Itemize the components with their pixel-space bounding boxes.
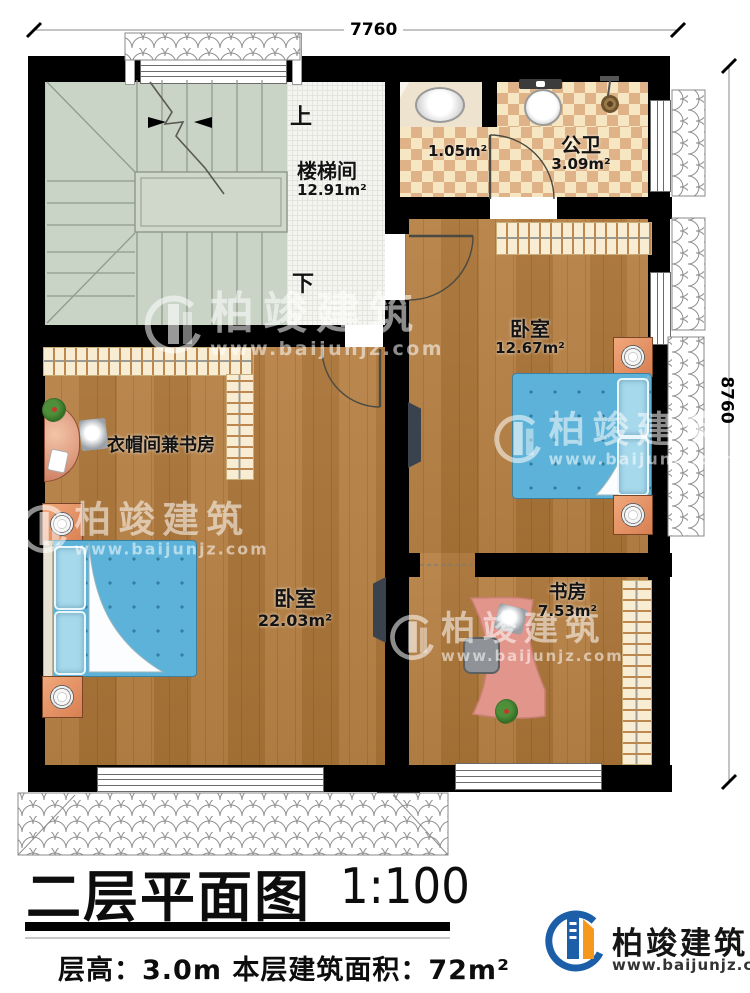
stair-down-label: 下 <box>292 273 314 298</box>
bedroom-right-closet <box>496 222 652 255</box>
bathroom-area: 3.09m² <box>546 156 616 173</box>
toilet-bowl <box>524 89 562 126</box>
cloakroom-label: 衣帽间兼书房 <box>107 436 215 456</box>
stairwell-bottom-wall <box>28 325 345 347</box>
stairwell-area: 12.91m² <box>297 182 367 199</box>
cloakroom-plant <box>42 398 66 422</box>
bedroom-right-area: 12.67m² <box>490 340 570 357</box>
dormer-roof <box>125 33 300 60</box>
study-wall-left-stub <box>409 553 420 577</box>
dormer-rail-left <box>125 33 135 85</box>
study-plant <box>495 699 518 724</box>
stairwell-name: 楼梯间 <box>297 160 367 182</box>
toilet-flush-button <box>536 81 545 87</box>
bedroom-left-name: 卧室 <box>250 588 340 612</box>
bed-left-headboard <box>43 540 53 677</box>
bedroom-right-window <box>650 272 671 345</box>
sink-basin <box>415 87 465 123</box>
tv-left-bedroom <box>373 577 386 643</box>
study-area: 7.53m² <box>530 603 605 620</box>
study-floor <box>405 553 650 765</box>
stair-up-label: 上 <box>290 106 312 131</box>
floor-plan-page: 柏竣建筑 www.baijunjz.com 柏竣建筑 www.baijunjz.… <box>0 0 750 993</box>
pillow <box>617 437 649 496</box>
center-wall <box>385 300 409 767</box>
cloakroom-closet-side <box>226 374 254 480</box>
right-roof-1 <box>672 90 705 196</box>
pillow <box>54 611 86 675</box>
cloakroom-closet-top <box>43 347 254 376</box>
cloakroom-desk-monitor <box>78 418 108 452</box>
center-wall-top-stub <box>385 219 409 234</box>
bedroom-left-label: 卧室 22.03m² <box>250 588 340 629</box>
stairwell-label: 楼梯间 12.91m² <box>297 160 367 199</box>
shower-head <box>601 95 619 113</box>
bedroom-left-area: 22.03m² <box>250 612 340 630</box>
nightstand <box>42 503 83 545</box>
bathroom-name: 公卫 <box>546 134 616 156</box>
company-logo-url: www.baijunjz.com <box>612 956 750 974</box>
bathroom-left-wall <box>385 56 400 219</box>
tv-right-bedroom <box>408 402 421 468</box>
bath-vestibule-area-label: 1.05m² <box>428 143 487 160</box>
pillow <box>617 378 649 437</box>
dimension-right-label: 8760 <box>717 370 737 429</box>
floor-info: 层高：3.0m 本层建筑面积：72m² <box>58 948 510 987</box>
company-logo-icon <box>540 905 608 981</box>
bathroom-bottom-wall-right <box>557 197 672 219</box>
pillow <box>54 546 86 610</box>
title-rule-thick <box>25 922 450 931</box>
right-roof-2 <box>672 218 705 330</box>
study-chair <box>463 637 500 674</box>
bedroom-right-name: 卧室 <box>490 318 570 340</box>
title-rule-thin <box>25 937 450 939</box>
nightstand <box>42 676 83 718</box>
study-closet <box>622 580 652 765</box>
bedroom-right-label: 卧室 12.67m² <box>490 318 570 357</box>
drawing-scale: 1:100 <box>340 858 470 915</box>
bottom-wall-pier <box>377 765 420 820</box>
study-name: 书房 <box>530 582 605 603</box>
study-wall <box>475 553 672 577</box>
study-label: 书房 7.53m² <box>530 582 605 620</box>
dormer-rail-right <box>292 33 302 85</box>
bathroom-partition-stub <box>482 82 497 127</box>
stair-dormer-window <box>140 58 287 84</box>
page-title: 二层平面图 <box>26 852 311 932</box>
bathroom-label: 公卫 3.09m² <box>546 134 616 173</box>
bathroom-window <box>650 100 671 192</box>
nightstand <box>613 495 653 535</box>
stairwell-floor <box>45 80 287 325</box>
study-window <box>455 763 602 790</box>
dimension-top-label: 7760 <box>344 20 403 40</box>
right-roof-3 <box>668 337 704 536</box>
bathroom-bottom-wall-left <box>385 197 490 219</box>
bedroom-left-window <box>97 767 324 792</box>
nightstand <box>613 337 653 377</box>
